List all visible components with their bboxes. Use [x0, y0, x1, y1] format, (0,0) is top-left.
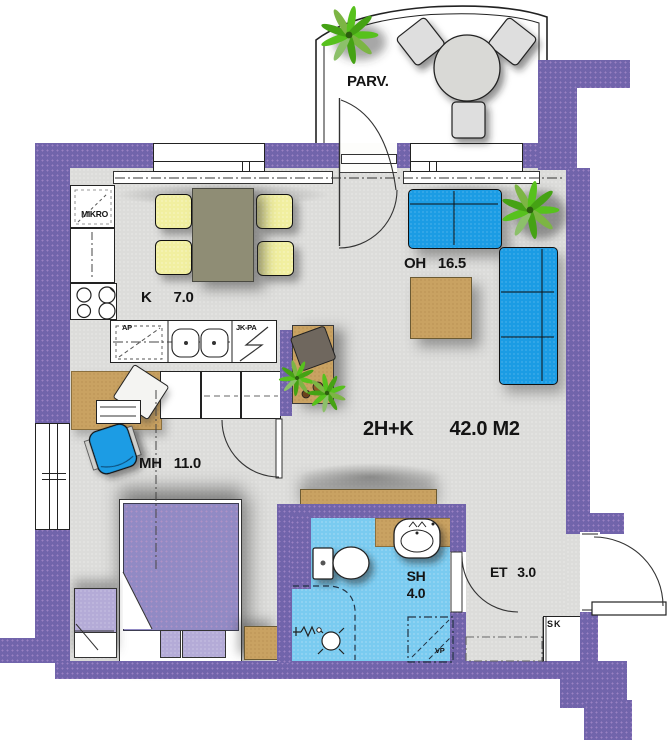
bed-fold	[75, 572, 152, 650]
kitchen-area: 7.0	[174, 289, 194, 306]
heater-symbol	[293, 627, 315, 636]
plan-title: 2H+K 42.0 M2	[363, 418, 520, 441]
fixture-label-microwave: MIKRO	[76, 209, 113, 219]
room-label-bedroom: MH 11.0	[139, 455, 201, 472]
washer-reservation-box	[408, 617, 453, 662]
plant-living-room	[501, 180, 566, 239]
fixture-label-washer-reservation: VP	[435, 646, 444, 655]
stove-burners	[77, 287, 115, 319]
wardrobe-details	[100, 396, 278, 416]
balcony-door	[339, 98, 397, 248]
entry-abbr: ET	[490, 564, 507, 580]
heater-symbol-dot	[317, 628, 321, 632]
floor-plan-page: { "title": { "layout": "2H+K", "area": "…	[0, 0, 668, 740]
bathroom-area: 4.0	[396, 585, 436, 602]
fixture-label-fridge-freezer: JK-PA	[236, 323, 256, 332]
balcony-table	[434, 35, 500, 101]
kitchen-abbr: K	[141, 289, 152, 306]
toilet	[313, 547, 369, 579]
plan-layout-label: 2H+K	[363, 418, 414, 441]
bedroom-abbr: MH	[139, 455, 162, 472]
room-label-kitchen: K 7.0	[141, 289, 194, 306]
bathroom-door	[451, 552, 518, 612]
closet-door-lines	[543, 617, 546, 662]
balcony-chair	[452, 102, 485, 138]
room-label-balcony: PARV.	[347, 73, 389, 90]
entry-reservation-box	[466, 637, 542, 661]
room-label-living-room: OH 16.5	[404, 255, 466, 272]
front-door	[582, 534, 666, 615]
entry-area: 3.0	[517, 564, 536, 580]
bathroom-abbr: SH	[396, 568, 436, 585]
plan-graphics	[0, 0, 668, 740]
fridge-zigzag	[240, 327, 268, 361]
floor-drain	[322, 632, 340, 650]
balcony-table-set	[396, 17, 538, 138]
fixture-label-cleaning-closet: SK	[547, 619, 562, 629]
dishwasher-diagonal	[119, 328, 160, 357]
living-room-abbr: OH	[404, 255, 426, 272]
bedroom-door	[222, 419, 282, 478]
office-chair	[82, 420, 143, 477]
room-label-entry: ET 3.0	[490, 564, 536, 580]
plan-area-label: 42.0 M2	[450, 418, 520, 441]
fixture-label-dishwasher: AP	[122, 323, 132, 332]
washbasin	[394, 519, 440, 558]
room-label-bathroom: SH 4.0	[396, 568, 436, 602]
shower-area	[293, 586, 355, 660]
living-room-area: 16.5	[438, 255, 466, 272]
bedroom-area: 11.0	[174, 455, 201, 472]
plant-balcony	[320, 5, 386, 64]
